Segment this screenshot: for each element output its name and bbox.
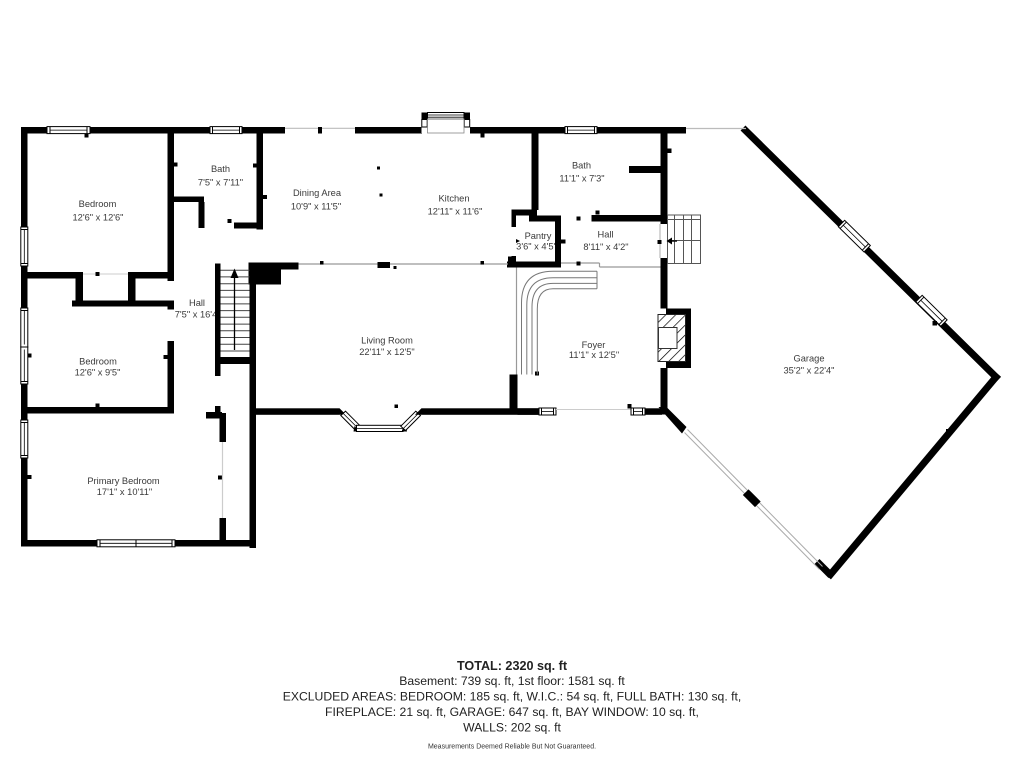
svg-text:35'2" x 22'4": 35'2" x 22'4" — [784, 366, 835, 376]
svg-text:10'9" x 11'5": 10'9" x 11'5" — [291, 202, 341, 212]
svg-text:Bath: Bath — [572, 161, 591, 171]
svg-text:FIREPLACE: 21 sq. ft, GARAGE:: FIREPLACE: 21 sq. ft, GARAGE: 647 sq. ft… — [325, 705, 699, 719]
svg-text:11'1" x 12'5": 11'1" x 12'5" — [569, 350, 619, 360]
svg-text:TOTAL: 2320 sq. ft: TOTAL: 2320 sq. ft — [457, 659, 568, 673]
svg-text:Bath: Bath — [211, 164, 230, 174]
svg-text:Basement: 739 sq. ft, 1st floo: Basement: 739 sq. ft, 1st floor: 1581 sq… — [399, 674, 625, 688]
svg-text:Dining Area: Dining Area — [293, 188, 342, 198]
svg-text:12'11" x 11'6": 12'11" x 11'6" — [428, 207, 483, 217]
svg-text:22'11" x 12'5": 22'11" x 12'5" — [359, 347, 414, 357]
svg-text:7'5" x 7'11": 7'5" x 7'11" — [198, 178, 243, 188]
svg-text:11'1" x 7'3": 11'1" x 7'3" — [559, 174, 604, 184]
svg-text:Measurements Deemed Reliable B: Measurements Deemed Reliable But Not Gua… — [428, 744, 596, 751]
svg-text:Hall: Hall — [597, 230, 613, 240]
svg-text:Bedroom: Bedroom — [79, 199, 117, 209]
svg-text:Primary Bedroom: Primary Bedroom — [87, 476, 160, 486]
svg-text:12'6" x 12'6": 12'6" x 12'6" — [73, 213, 124, 223]
svg-text:WALLS: 202 sq. ft: WALLS: 202 sq. ft — [463, 721, 561, 735]
svg-text:12'6" x 9'5": 12'6" x 9'5" — [75, 368, 121, 378]
svg-text:7'5" x 16'4: 7'5" x 16'4 — [175, 310, 218, 320]
svg-text:3'6" x 4'5": 3'6" x 4'5" — [516, 242, 557, 252]
svg-text:EXCLUDED AREAS: BEDROOM: 185 s: EXCLUDED AREAS: BEDROOM: 185 sq. ft, W.I… — [283, 690, 742, 704]
svg-text:8'11" x 4'2": 8'11" x 4'2" — [583, 242, 628, 252]
svg-text:Foyer: Foyer — [582, 340, 606, 350]
svg-text:Garage: Garage — [793, 354, 824, 364]
svg-text:Pantry: Pantry — [525, 231, 552, 241]
svg-text:Hall: Hall — [189, 298, 205, 308]
svg-text:17'1" x 10'11": 17'1" x 10'11" — [97, 487, 152, 497]
svg-text:Living Room: Living Room — [361, 336, 413, 346]
svg-text:Bedroom: Bedroom — [79, 357, 117, 367]
svg-text:Kitchen: Kitchen — [438, 194, 469, 204]
